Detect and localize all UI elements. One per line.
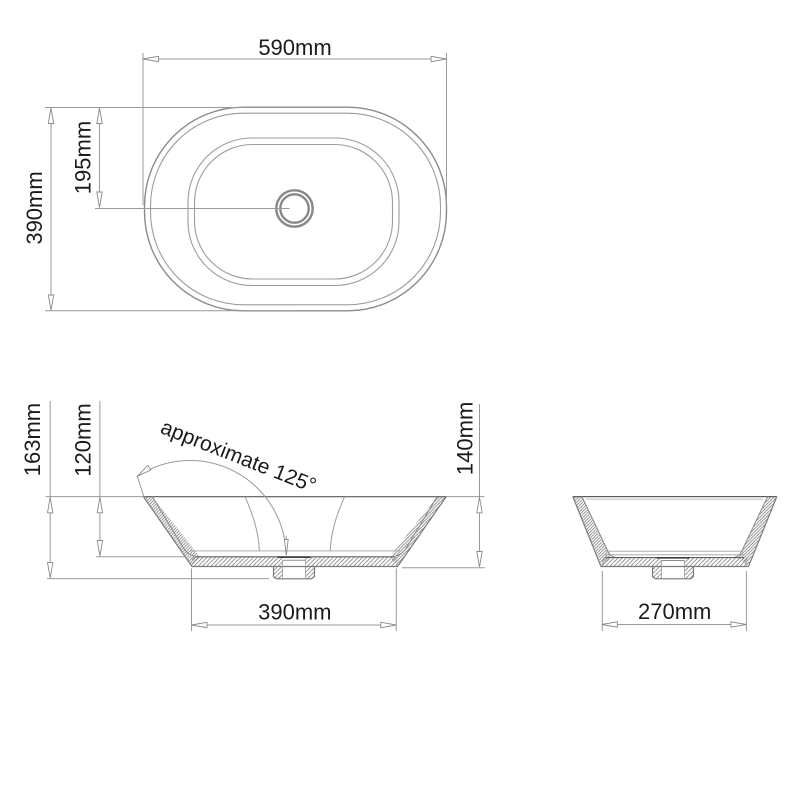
svg-text:195mm: 195mm bbox=[70, 121, 95, 194]
svg-text:390mm: 390mm bbox=[258, 600, 331, 625]
svg-text:140mm: 140mm bbox=[453, 402, 478, 475]
svg-text:163mm: 163mm bbox=[20, 403, 45, 476]
svg-text:590mm: 590mm bbox=[258, 35, 331, 60]
svg-text:120mm: 120mm bbox=[71, 403, 96, 476]
svg-text:270mm: 270mm bbox=[638, 599, 711, 624]
svg-text:390mm: 390mm bbox=[22, 171, 47, 244]
